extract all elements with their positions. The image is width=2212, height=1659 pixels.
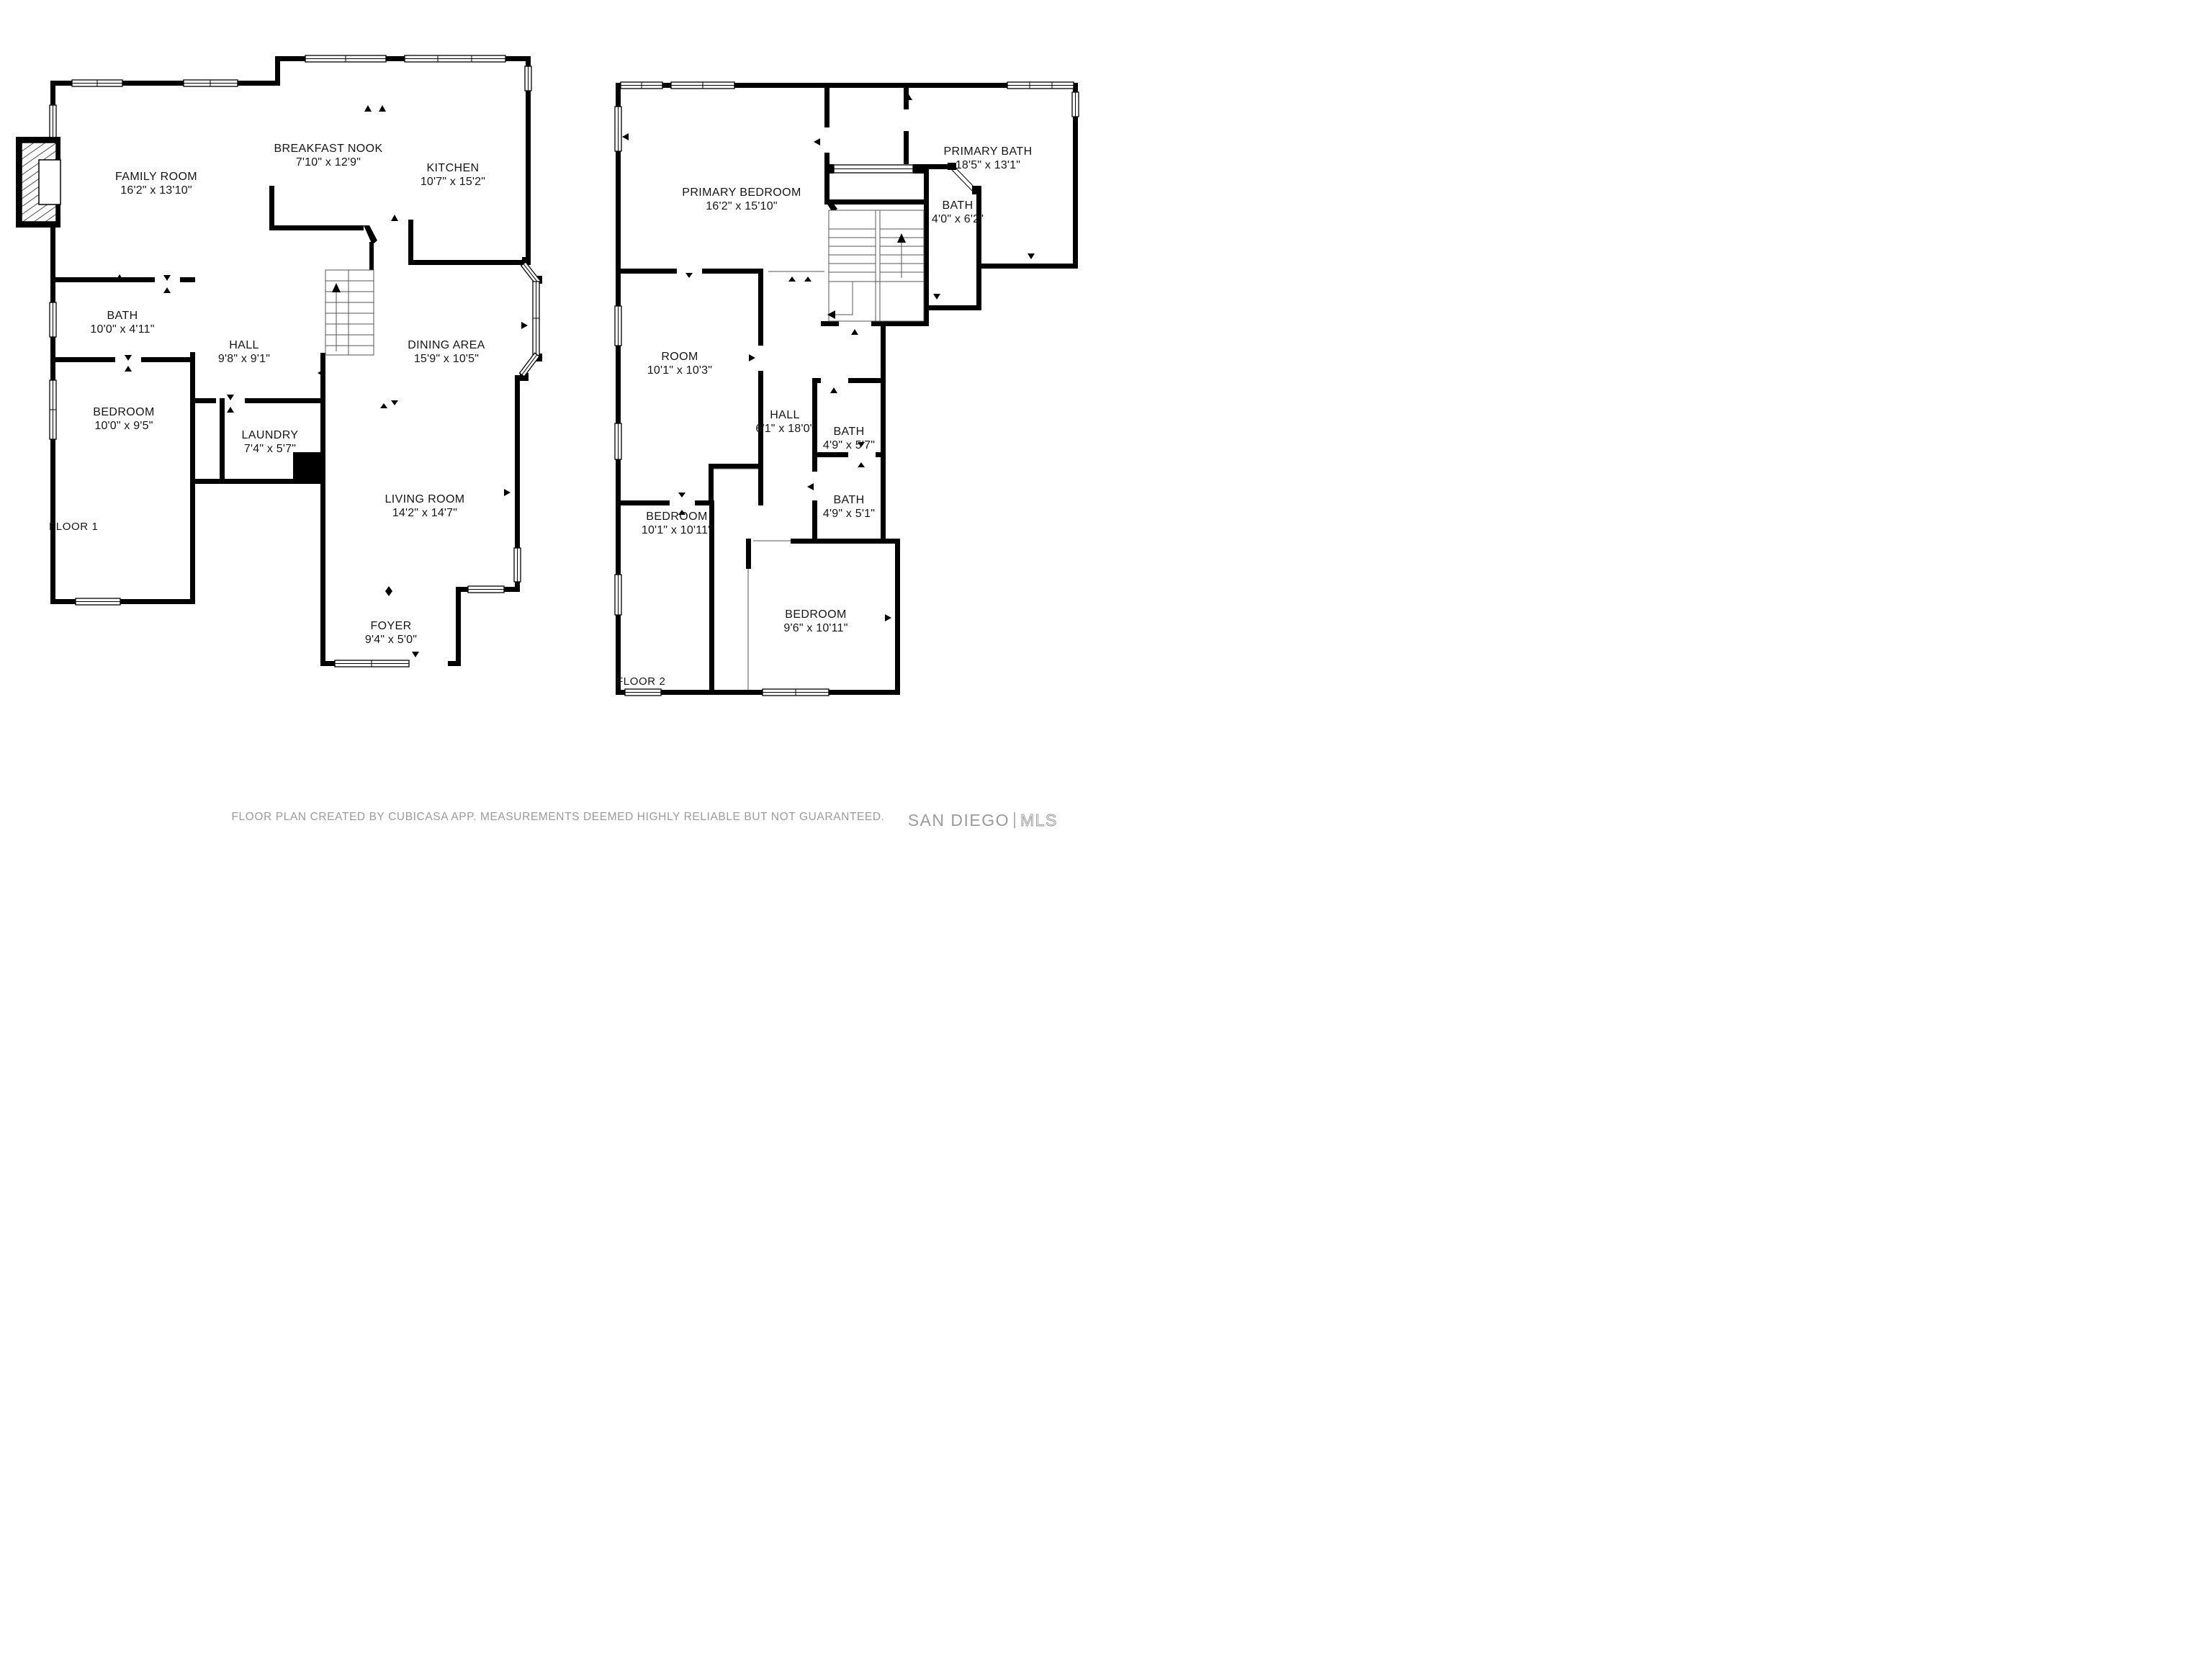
door-arrow-icon <box>125 366 132 372</box>
wall-segment <box>448 661 461 666</box>
wall-segment <box>141 357 195 362</box>
marker-arrow-icon <box>804 276 811 282</box>
marker-arrow-icon <box>622 133 629 140</box>
room-label-family-room: FAMILY ROOM <box>115 171 197 183</box>
wall-segment <box>791 539 886 544</box>
room-dims-bath1: 10'0" x 4'11" <box>90 323 154 336</box>
door-arrow-icon <box>163 287 171 293</box>
room-label-foyer: FOYER <box>370 620 411 632</box>
room-dims-family-room: 16'2" x 13'10" <box>120 184 192 197</box>
wall-segment <box>924 305 981 310</box>
room-dims-hall2: 6'1" x 18'0" <box>755 423 814 435</box>
room-label-dining-area: DINING AREA <box>408 339 485 351</box>
wall-segment <box>364 225 377 245</box>
room-label-primary-bedroom: PRIMARY BEDROOM <box>682 186 801 199</box>
wall-segment <box>824 88 829 127</box>
plan-line <box>829 210 924 321</box>
room-dims-breakfast-nook: 7'10" x 12'9" <box>296 156 361 168</box>
wall-segment <box>50 357 115 362</box>
wall-segment <box>812 452 848 457</box>
wall-segment <box>758 371 763 505</box>
door-arrow-icon <box>814 138 820 145</box>
room-dims-dining-area: 15'9" x 10'5" <box>414 353 479 365</box>
door-arrow-icon <box>830 387 837 393</box>
wall-segment <box>50 599 195 604</box>
wall-segment <box>408 260 531 265</box>
floor1-label: FLOOR 1 <box>49 521 98 533</box>
room-dims-bedroom-right: 9'6" x 10'11" <box>783 622 848 634</box>
plan-line <box>325 270 374 355</box>
floor2-room-labels: PRIMARY BEDROOM 16'2" x 15'10" PRIMARY B… <box>616 145 1033 688</box>
wall-segment <box>245 398 325 403</box>
door-arrow-icon <box>858 462 865 467</box>
floor1-room-labels: FAMILY ROOM 16'2" x 13'10" BREAKFAST NOO… <box>49 143 485 646</box>
door-arrow-icon <box>521 322 528 329</box>
door-arrow-icon <box>379 105 386 112</box>
marker-arrow-icon <box>788 276 796 282</box>
door-arrow-icon <box>364 105 372 112</box>
door-arrow-icon <box>391 215 398 221</box>
wall-segment <box>220 398 225 484</box>
room-label-breakfast-nook: BREAKFAST NOOK <box>274 143 382 155</box>
room-label-bedroom1: BEDROOM <box>93 406 154 418</box>
room-dims-foyer: 9'4" x 5'0" <box>365 634 417 646</box>
room-dims-hall1: 9'8" x 9'1" <box>218 353 270 365</box>
plan-line <box>522 355 537 375</box>
wall-segment <box>456 587 461 666</box>
floor-plan-page: { "document_type": "floor-plan", "floor1… <box>0 0 1106 829</box>
wall-segment <box>924 164 929 321</box>
door-arrow-icon <box>1028 253 1035 259</box>
wall-segment <box>190 398 216 403</box>
room-label-bath-upper: BATH <box>833 426 864 438</box>
door-arrow-icon <box>851 329 858 335</box>
door-arrow-icon <box>685 273 693 278</box>
room-label-bedroom-right: BEDROOM <box>785 608 846 621</box>
door-arrow-icon <box>125 355 132 361</box>
room-dims-living-room: 14'2" x 14'7" <box>392 507 457 519</box>
room-dims-kitchen: 10'7" x 15'2" <box>421 176 485 188</box>
door-arrow-icon <box>227 407 234 413</box>
watermark-suffix: MLS <box>1020 811 1058 829</box>
wall-segment <box>269 186 274 230</box>
marker-arrow-icon <box>391 400 398 405</box>
room-dims-room: 10'1" x 10'3" <box>647 364 712 377</box>
wall-segment <box>369 242 374 271</box>
room-label-hall1: HALL <box>229 339 259 351</box>
room-dims-primary-bath: 18'5" x 13'1" <box>956 159 1020 171</box>
wall-segment <box>746 539 751 569</box>
door-arrow-icon <box>885 614 891 621</box>
room-dims-bedroom-left: 10'1" x 10'11" <box>642 524 712 536</box>
wall-segment <box>812 500 817 544</box>
wall-segment <box>702 269 763 274</box>
wall-segment <box>320 661 336 666</box>
wall-segment <box>190 352 195 604</box>
room-label-bath-lower: BATH <box>833 494 864 506</box>
room-dims-laundry: 7'4" x 5'7" <box>244 443 296 455</box>
staircase-floor2 <box>827 210 924 321</box>
wall-segment <box>758 269 763 346</box>
floor2-label: FLOOR 2 <box>616 675 665 688</box>
floor2-walls <box>616 83 1078 695</box>
room-label-laundry: LAUNDRY <box>242 429 299 441</box>
floor2-plan: PRIMARY BEDROOM 16'2" x 15'10" PRIMARY B… <box>615 82 1079 696</box>
wall-segment <box>709 464 714 505</box>
floor-plan-canvas: FAMILY ROOM 16'2" x 13'10" BREAKFAST NOO… <box>0 0 1106 829</box>
room-label-bath1: BATH <box>107 310 138 322</box>
marker-arrow-icon <box>385 586 392 591</box>
wall-segment <box>871 321 929 326</box>
fireplace <box>16 137 60 228</box>
wall-segment <box>408 220 413 265</box>
wall-segment <box>881 326 886 544</box>
room-label-bedroom-left: BEDROOM <box>646 511 707 523</box>
wall-segment <box>616 500 670 505</box>
dining-bay-window <box>520 262 541 377</box>
room-dims-bath-lower: 4'9" x 5'1" <box>823 508 875 520</box>
floor1-plan: FAMILY ROOM 16'2" x 13'10" BREAKFAST NOO… <box>16 55 542 667</box>
wall-segment <box>895 539 900 695</box>
footer-disclaimer: FLOOR PLAN CREATED BY CUBICASA APP. MEAS… <box>231 811 884 823</box>
room-dims-bath-upper: 4'9" x 5'7" <box>823 439 875 451</box>
wall-segment <box>180 277 195 282</box>
wall-segment <box>821 321 839 326</box>
floor2-windows <box>615 82 1079 696</box>
marker-arrow-icon <box>380 403 387 408</box>
wall-segment <box>320 353 325 666</box>
wall-segment <box>616 269 677 274</box>
door-arrow-icon <box>163 275 171 281</box>
room-label-room: ROOM <box>661 351 698 363</box>
plan-line <box>523 264 539 283</box>
door-arrow-icon <box>807 483 814 490</box>
wall-segment <box>824 153 829 204</box>
door-arrow-icon <box>504 489 511 496</box>
watermark-brand: SAN DIEGO <box>908 811 1010 829</box>
mls-watermark: SAN DIEGO MLS <box>908 811 1058 829</box>
wall-segment <box>976 264 1078 269</box>
wall-segment <box>876 452 886 457</box>
door-arrow-icon <box>933 294 940 300</box>
wall-segment <box>976 189 981 310</box>
wall-segment <box>848 378 886 383</box>
room-label-hall2: HALL <box>770 409 800 421</box>
plan-line <box>520 353 539 377</box>
plan-line <box>952 170 974 193</box>
wall-segment <box>709 464 763 469</box>
door-arrow-icon <box>227 395 234 400</box>
room-label-primary-bath: PRIMARY BATH <box>943 145 1032 158</box>
door-arrow-icon <box>749 354 755 361</box>
room-label-bath-small: BATH <box>942 199 973 212</box>
room-dims-bedroom1: 10'0" x 9'5" <box>94 420 153 432</box>
wall-segment <box>269 225 364 230</box>
wall-segment <box>904 131 909 164</box>
door-arrow-icon <box>412 652 419 657</box>
marker-arrow-icon <box>385 591 392 596</box>
room-dims-bath-small: 4'0" x 6'2" <box>932 213 984 225</box>
staircase-floor1 <box>325 270 374 355</box>
wall-segment <box>829 199 924 204</box>
wall-segment <box>50 277 155 282</box>
door-arrow-icon <box>678 493 685 498</box>
wall-segment <box>824 164 834 174</box>
room-label-kitchen: KITCHEN <box>426 162 479 174</box>
wall-segment <box>515 375 520 551</box>
primary-closet-slider <box>834 165 913 173</box>
plan-line <box>39 160 60 204</box>
room-label-living-room: LIVING ROOM <box>385 493 464 505</box>
room-dims-primary-bedroom: 16'2" x 15'10" <box>706 200 777 212</box>
